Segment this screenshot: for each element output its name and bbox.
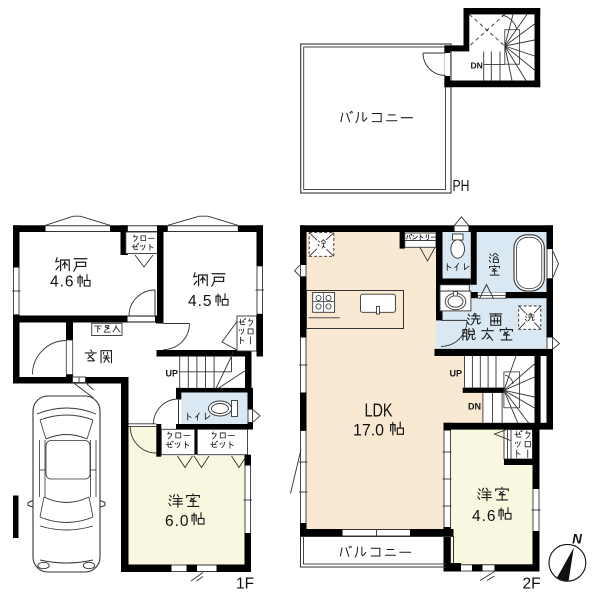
svg-text:DN: DN (471, 61, 483, 71)
svg-text:PH: PH (453, 178, 470, 195)
svg-text:4.6: 4.6 (50, 274, 75, 291)
svg-text:17.0: 17.0 (353, 421, 384, 440)
svg-text:2F: 2F (523, 576, 541, 593)
svg-text:UP: UP (450, 369, 463, 379)
svg-text:1F: 1F (236, 576, 254, 593)
svg-text:4.6: 4.6 (472, 508, 497, 525)
svg-text:6.0: 6.0 (165, 513, 190, 530)
svg-text:DN: DN (468, 402, 481, 412)
svg-text:LDK: LDK (365, 401, 393, 421)
svg-text:UP: UP (166, 369, 179, 379)
svg-text:N: N (572, 532, 582, 547)
svg-text:4.5: 4.5 (188, 293, 213, 310)
